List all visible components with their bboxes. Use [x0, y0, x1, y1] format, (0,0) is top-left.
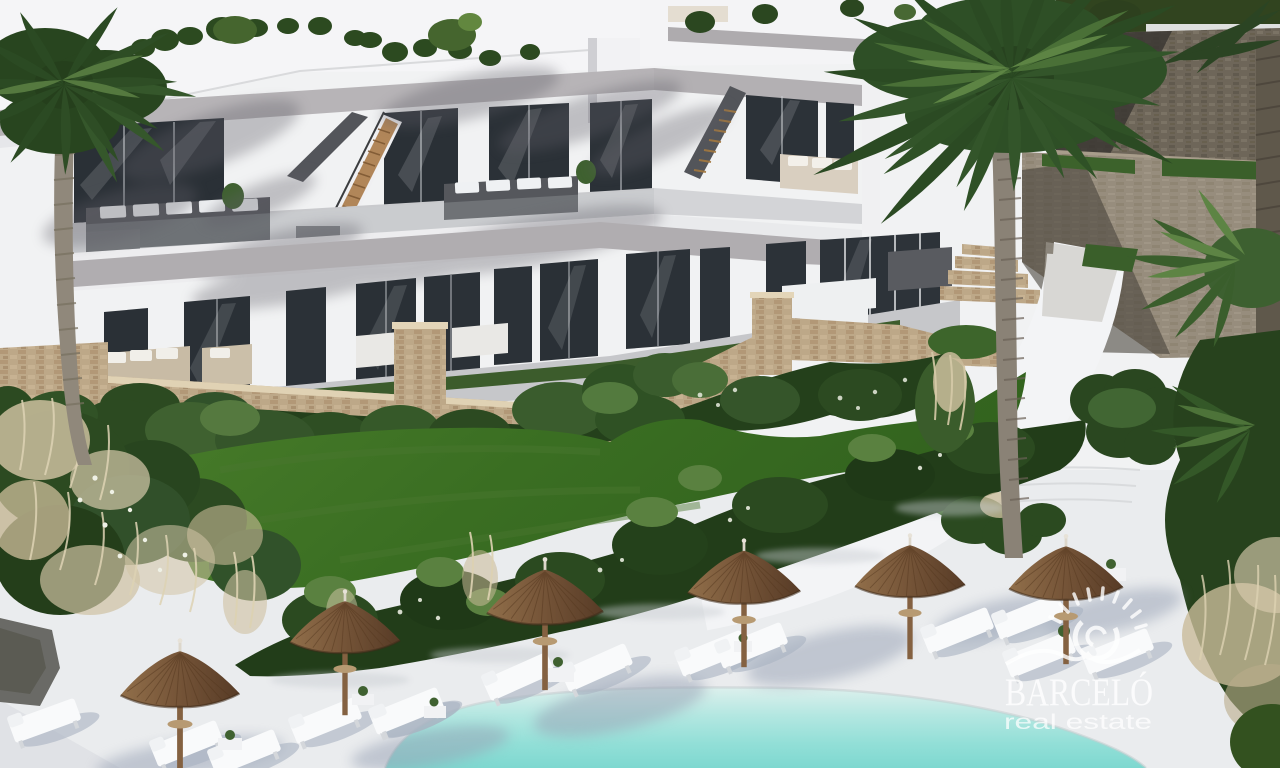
svg-text:real estate: real estate [1004, 711, 1152, 734]
svg-text:BARCELÓ: BARCELÓ [1005, 670, 1153, 714]
